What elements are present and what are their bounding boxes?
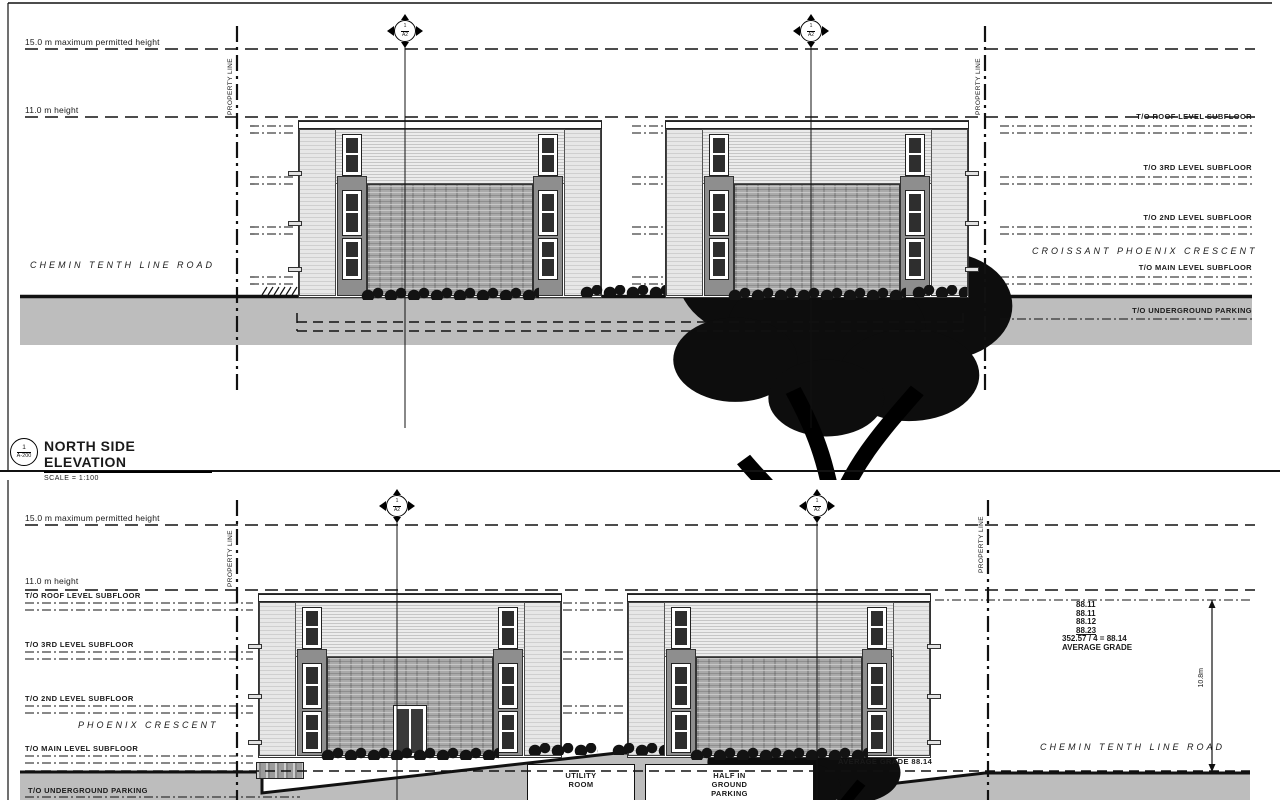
marker-point-icon: [379, 501, 386, 511]
utility-room-label: UTILITY: [565, 771, 596, 780]
level-label-2nd: T/O 2ND LEVEL SUBFLOOR: [25, 694, 134, 703]
balcony-slab: [288, 171, 302, 176]
marker-sheet: A2: [402, 32, 408, 40]
window: [710, 135, 728, 175]
elevation-drawing-sheet: 15.0 m maximum permitted height 11.0 m h…: [0, 0, 1280, 800]
shrub-row: [321, 747, 499, 760]
level-label-main: T/O MAIN LEVEL SUBFLOOR: [25, 744, 138, 753]
marker-number: 1: [807, 23, 816, 32]
grid-marker: 1 A2: [386, 495, 408, 517]
marker-point-icon: [813, 517, 821, 523]
building-elevation: [258, 593, 562, 758]
building-siding-band: [702, 129, 932, 184]
window: [906, 135, 924, 175]
balcony-slab: [927, 694, 941, 699]
building-parapet: [298, 121, 602, 129]
road-name-left: CHEMIN TENTH LINE ROAD: [30, 260, 215, 270]
window: [343, 191, 361, 235]
building-siding-band: [664, 602, 894, 657]
shrub-row: [361, 287, 539, 300]
building-balcony-wing-right: [524, 602, 561, 756]
north-elevation-ground: [0, 0, 1280, 480]
marker-point-icon: [799, 501, 806, 511]
building-stone-panel: [696, 657, 862, 756]
window: [868, 608, 886, 648]
building-parapet: [665, 121, 969, 129]
height-11m-label: 11.0 m height: [25, 576, 78, 586]
window: [303, 664, 321, 708]
average-grade-label: AVERAGE GRADE: [1062, 644, 1132, 653]
marker-point-icon: [401, 42, 409, 48]
marker-point-icon: [793, 26, 800, 36]
window: [710, 191, 728, 235]
level-label-roof: T/O ROOF LEVEL SUBFLOOR: [1067, 112, 1252, 121]
marker-point-icon: [828, 501, 835, 511]
balcony-slab: [965, 221, 979, 226]
utility-room-label: ROOM: [569, 780, 594, 789]
street-name-left: PHOENIX CRESCENT: [78, 720, 219, 730]
marker-bubble: 1 A2: [386, 495, 408, 517]
marker-number: 1: [393, 498, 402, 507]
marker-point-icon: [408, 501, 415, 511]
grid-marker: 1 A2: [806, 495, 828, 517]
window: [672, 712, 690, 752]
building-balcony-wing-left: [259, 602, 296, 756]
window: [343, 135, 361, 175]
window: [868, 664, 886, 708]
window: [672, 664, 690, 708]
window: [499, 712, 517, 752]
window: [906, 191, 924, 235]
marker-sheet: A2: [814, 507, 820, 515]
marker-bubble: 1 A2: [394, 20, 416, 42]
building-balcony-wing-right: [931, 129, 968, 296]
level-label-underground: T/O UNDERGROUND PARKING: [28, 786, 148, 795]
road-name-right: CHEMIN TENTH LINE ROAD: [1040, 742, 1225, 752]
north-elevation-lines: [0, 0, 1280, 480]
window: [906, 239, 924, 279]
level-label-main: T/O MAIN LEVEL SUBFLOOR: [1067, 263, 1252, 272]
marker-point-icon: [387, 26, 394, 36]
building-siding-band: [335, 129, 565, 184]
marker-point-icon: [807, 42, 815, 48]
balcony-slab: [927, 644, 941, 649]
building-stone-panel: [734, 184, 900, 296]
utility-room-box: UTILITY ROOM: [527, 764, 635, 800]
marker-number: 1: [813, 498, 822, 507]
marker-sheet: A2: [394, 507, 400, 515]
building-siding-band: [295, 602, 525, 657]
shrub-cluster: [528, 743, 598, 755]
grade-calculation-block: 88.11 88.11 88.12 88.23 352.57 / 4 = 88.…: [1062, 601, 1132, 652]
balcony-slab: [248, 740, 262, 745]
level-label-3rd: T/O 3RD LEVEL SUBFLOOR: [25, 640, 134, 649]
marker-point-icon: [416, 26, 423, 36]
stone-planter: [256, 762, 304, 779]
building-parapet: [627, 594, 931, 602]
window: [499, 608, 517, 648]
building-balcony-wing-left: [628, 602, 665, 756]
level-label-2nd: T/O 2ND LEVEL SUBFLOOR: [1067, 213, 1252, 222]
window: [303, 712, 321, 752]
balcony-slab: [965, 171, 979, 176]
building-stone-panel: [367, 184, 533, 296]
property-line-label: PROPERTY LINE: [978, 516, 985, 573]
window: [343, 239, 361, 279]
grade-value: 88.11: [1062, 601, 1132, 610]
property-line-label: PROPERTY LINE: [227, 58, 234, 115]
building-balcony-wing-left: [666, 129, 703, 296]
building-balcony-wing-left: [299, 129, 336, 296]
drawing-title-block: 1 A-200 NORTH SIDE ELEVATION SCALE = 1:1…: [10, 438, 212, 482]
property-line-label: PROPERTY LINE: [975, 58, 982, 115]
street-name-right: CROISSANT PHOENIX CRESCENT: [1032, 246, 1258, 256]
window: [539, 239, 557, 279]
drawing-title: NORTH SIDE ELEVATION: [44, 438, 212, 473]
marker-bubble: 1 A2: [800, 20, 822, 42]
window: [303, 608, 321, 648]
level-label-roof: T/O ROOF LEVEL SUBFLOOR: [25, 591, 141, 600]
grid-marker: 1 A2: [800, 20, 822, 42]
shrub-cluster: [580, 285, 665, 297]
window: [539, 135, 557, 175]
sheet-number: A-200: [17, 453, 32, 460]
window: [868, 712, 886, 752]
detail-bubble: 1 A-200: [10, 438, 38, 466]
marker-bubble: 1 A2: [806, 495, 828, 517]
window: [672, 608, 690, 648]
building-parapet: [258, 594, 562, 602]
level-label-underground: T/O UNDERGROUND PARKING: [1067, 306, 1252, 315]
property-line-label: PROPERTY LINE: [227, 530, 234, 587]
balcony-slab: [248, 694, 262, 699]
window: [539, 191, 557, 235]
grade-value: 88.11: [1062, 610, 1132, 619]
building-elevation: [298, 120, 602, 298]
balcony-slab: [248, 644, 262, 649]
parking-label: PARKING: [711, 789, 748, 798]
title-text: NORTH SIDE ELEVATION SCALE = 1:100: [44, 438, 212, 482]
grade-value: 88.12: [1062, 618, 1132, 627]
parking-label: GROUND: [712, 780, 748, 789]
half-in-ground-parking-box: HALF IN GROUND PARKING: [645, 764, 814, 800]
marker-sheet: A2: [808, 32, 814, 40]
window: [710, 239, 728, 279]
grid-marker: 1 A2: [394, 20, 416, 42]
max-height-label: 15.0 m maximum permitted height: [25, 513, 160, 523]
balcony-slab: [288, 267, 302, 272]
detail-number: 1: [17, 444, 31, 453]
parking-label: HALF IN: [713, 771, 745, 780]
dimension-label: 10.8m: [1198, 668, 1205, 687]
building-balcony-wing-right: [564, 129, 601, 296]
shrub-cluster: [612, 743, 664, 755]
shrub-row: [728, 287, 906, 300]
shrub-cluster: [912, 285, 967, 297]
building-elevation: [665, 120, 969, 298]
max-height-label: 15.0 m maximum permitted height: [25, 37, 160, 47]
marker-number: 1: [401, 23, 410, 32]
marker-point-icon: [393, 517, 401, 523]
level-label-3rd: T/O 3RD LEVEL SUBFLOOR: [1067, 163, 1252, 172]
balcony-slab: [965, 267, 979, 272]
height-11m-label: 11.0 m height: [25, 105, 78, 115]
building-balcony-wing-right: [893, 602, 930, 756]
average-grade-line-label: AVERAGE GRADE 88.14: [838, 757, 932, 766]
balcony-slab: [288, 221, 302, 226]
window: [499, 664, 517, 708]
drawing-scale: SCALE = 1:100: [44, 475, 212, 482]
balcony-slab: [927, 740, 941, 745]
marker-point-icon: [822, 26, 829, 36]
building-elevation: [627, 593, 931, 758]
